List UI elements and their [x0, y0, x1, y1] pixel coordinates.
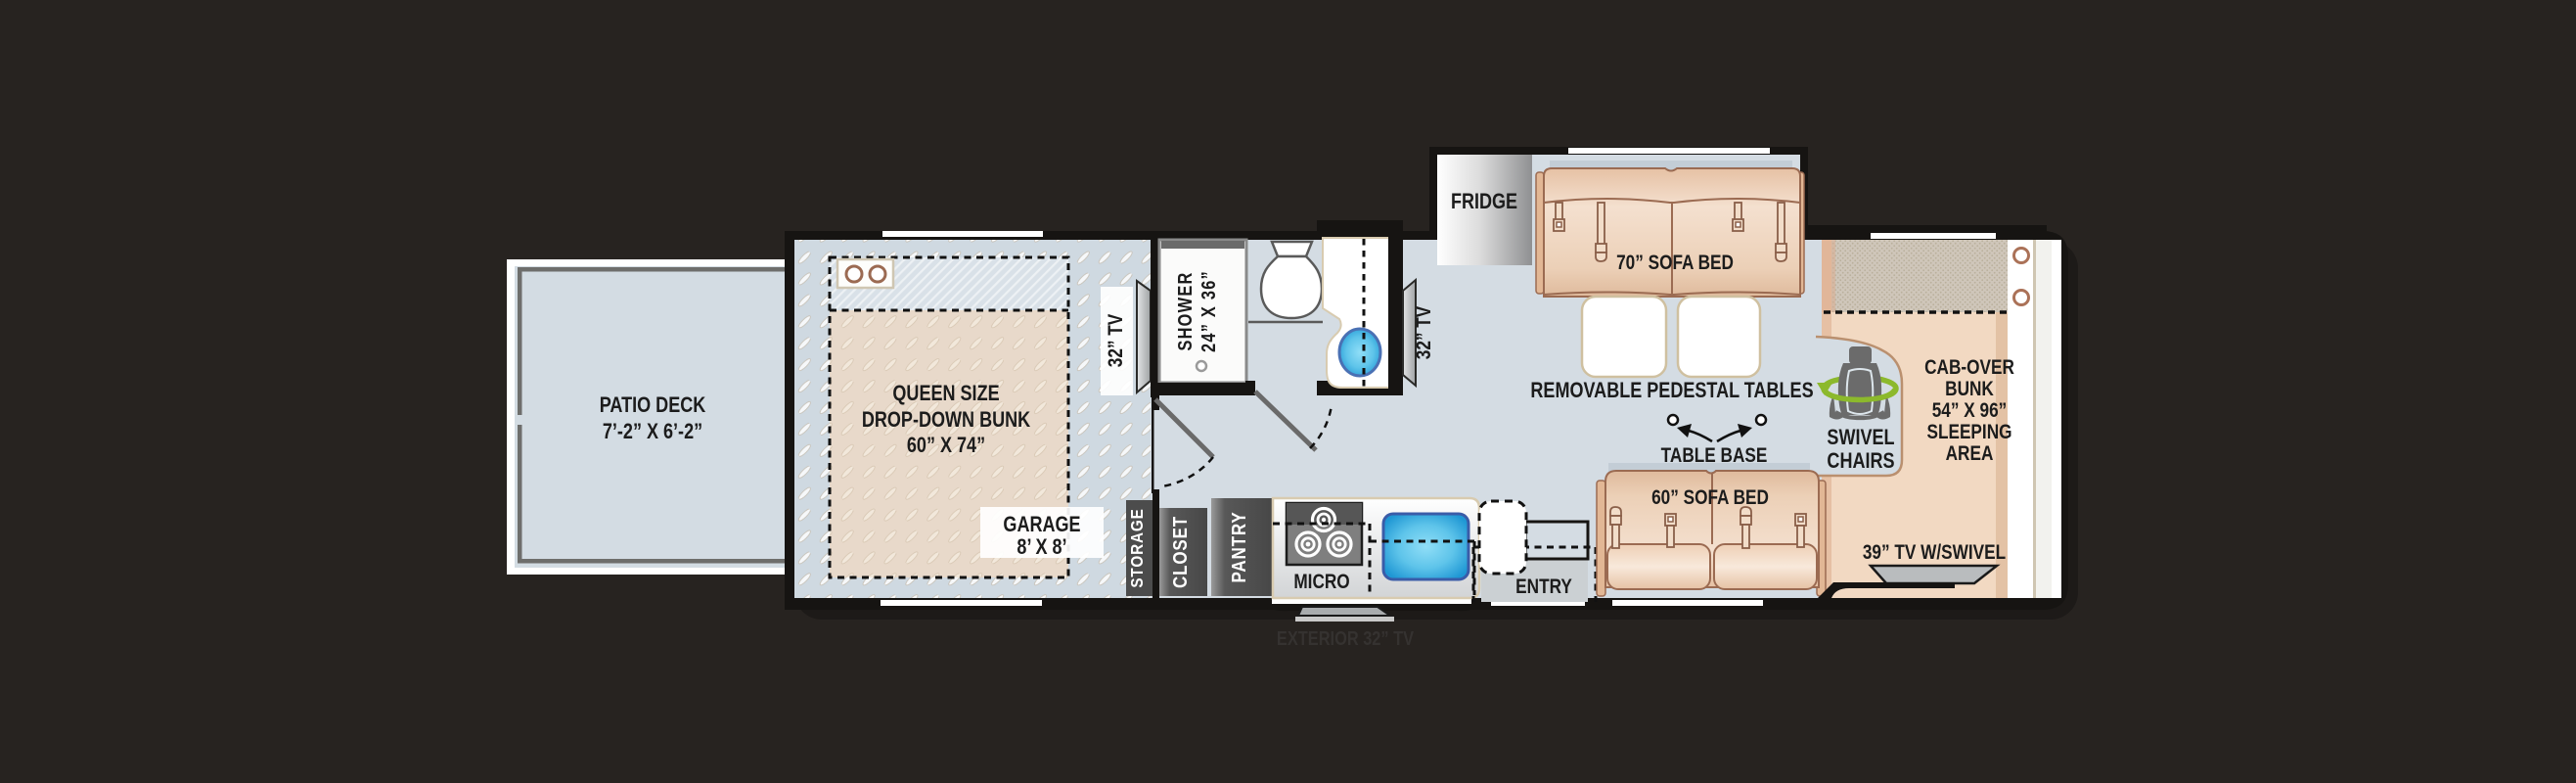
svg-text:8’ X 8’: 8’ X 8’	[1017, 535, 1066, 559]
svg-text:SLEEPING: SLEEPING	[1926, 422, 2011, 444]
svg-text:BUNK: BUNK	[1945, 379, 1994, 401]
svg-text:60” X 74”: 60” X 74”	[907, 434, 985, 457]
svg-text:CLOSET: CLOSET	[1169, 516, 1192, 588]
svg-text:70” SOFA BED: 70” SOFA BED	[1616, 253, 1734, 275]
svg-text:PATIO DECK: PATIO DECK	[600, 393, 706, 417]
svg-text:DROP-DOWN BUNK: DROP-DOWN BUNK	[862, 408, 1031, 432]
svg-text:CHAIRS: CHAIRS	[1827, 449, 1894, 473]
svg-text:54” X 96”: 54” X 96”	[1932, 400, 2008, 423]
svg-text:CAB-OVER: CAB-OVER	[1924, 357, 2014, 380]
svg-text:FRIDGE: FRIDGE	[1451, 190, 1517, 213]
svg-text:QUEEN SIZE: QUEEN SIZE	[892, 382, 999, 405]
svg-text:GARAGE: GARAGE	[1003, 513, 1080, 536]
svg-text:SHOWER: SHOWER	[1173, 271, 1196, 350]
svg-text:MICRO: MICRO	[1293, 572, 1349, 594]
svg-text:39” TV W/SWIVEL: 39” TV W/SWIVEL	[1863, 542, 2007, 565]
svg-text:PANTRY: PANTRY	[1228, 511, 1250, 582]
svg-text:32” TV: 32” TV	[1106, 314, 1128, 368]
svg-text:STORAGE: STORAGE	[1127, 508, 1147, 587]
svg-text:ENTRY: ENTRY	[1515, 576, 1572, 599]
svg-text:AREA: AREA	[1946, 443, 1994, 466]
svg-text:7’-2” X 6’-2”: 7’-2” X 6’-2”	[603, 420, 702, 443]
svg-text:EXTERIOR 32” TV: EXTERIOR 32” TV	[1277, 626, 1415, 649]
svg-text:24” X 36”: 24” X 36”	[1197, 270, 1219, 352]
svg-text:SWIVEL: SWIVEL	[1827, 426, 1894, 449]
svg-text:60” SOFA BED: 60” SOFA BED	[1651, 487, 1769, 510]
svg-text:REMOVABLE PEDESTAL TABLES: REMOVABLE PEDESTAL TABLES	[1530, 379, 1813, 402]
svg-text:32” TV: 32” TV	[1414, 306, 1436, 360]
